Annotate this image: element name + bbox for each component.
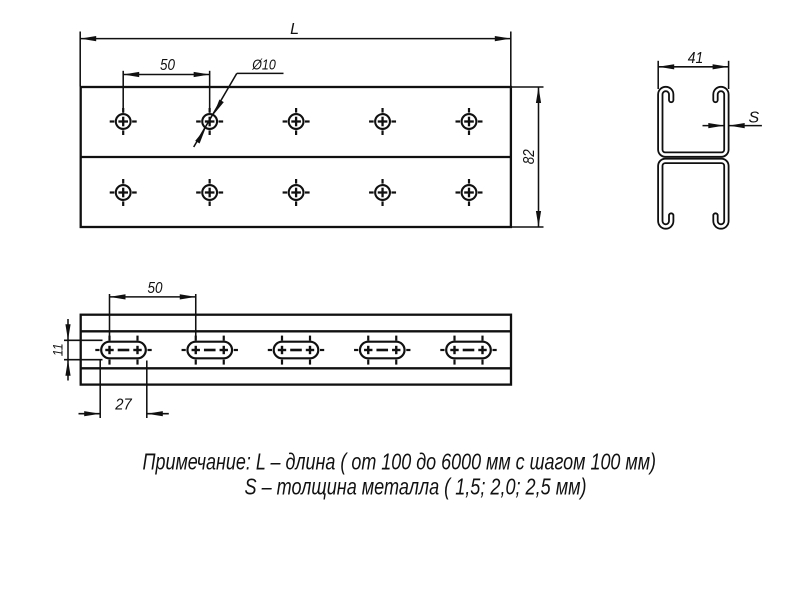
svg-text:Примечание: L – длина ( от 100: Примечание: L – длина ( от 100 до 6000 м… (143, 449, 657, 475)
svg-text:11: 11 (49, 343, 65, 356)
svg-text:41: 41 (688, 50, 704, 67)
svg-text:S – толщина металла ( 1,5; 2,0: S – толщина металла ( 1,5; 2,0; 2,5 мм) (245, 474, 587, 500)
svg-text:Ø10: Ø10 (251, 56, 276, 73)
svg-text:50: 50 (160, 57, 175, 74)
svg-text:27: 27 (114, 396, 133, 413)
svg-text:L: L (290, 21, 299, 38)
svg-text:82: 82 (521, 149, 538, 164)
svg-text:50: 50 (148, 280, 163, 297)
svg-text:S: S (748, 110, 759, 127)
